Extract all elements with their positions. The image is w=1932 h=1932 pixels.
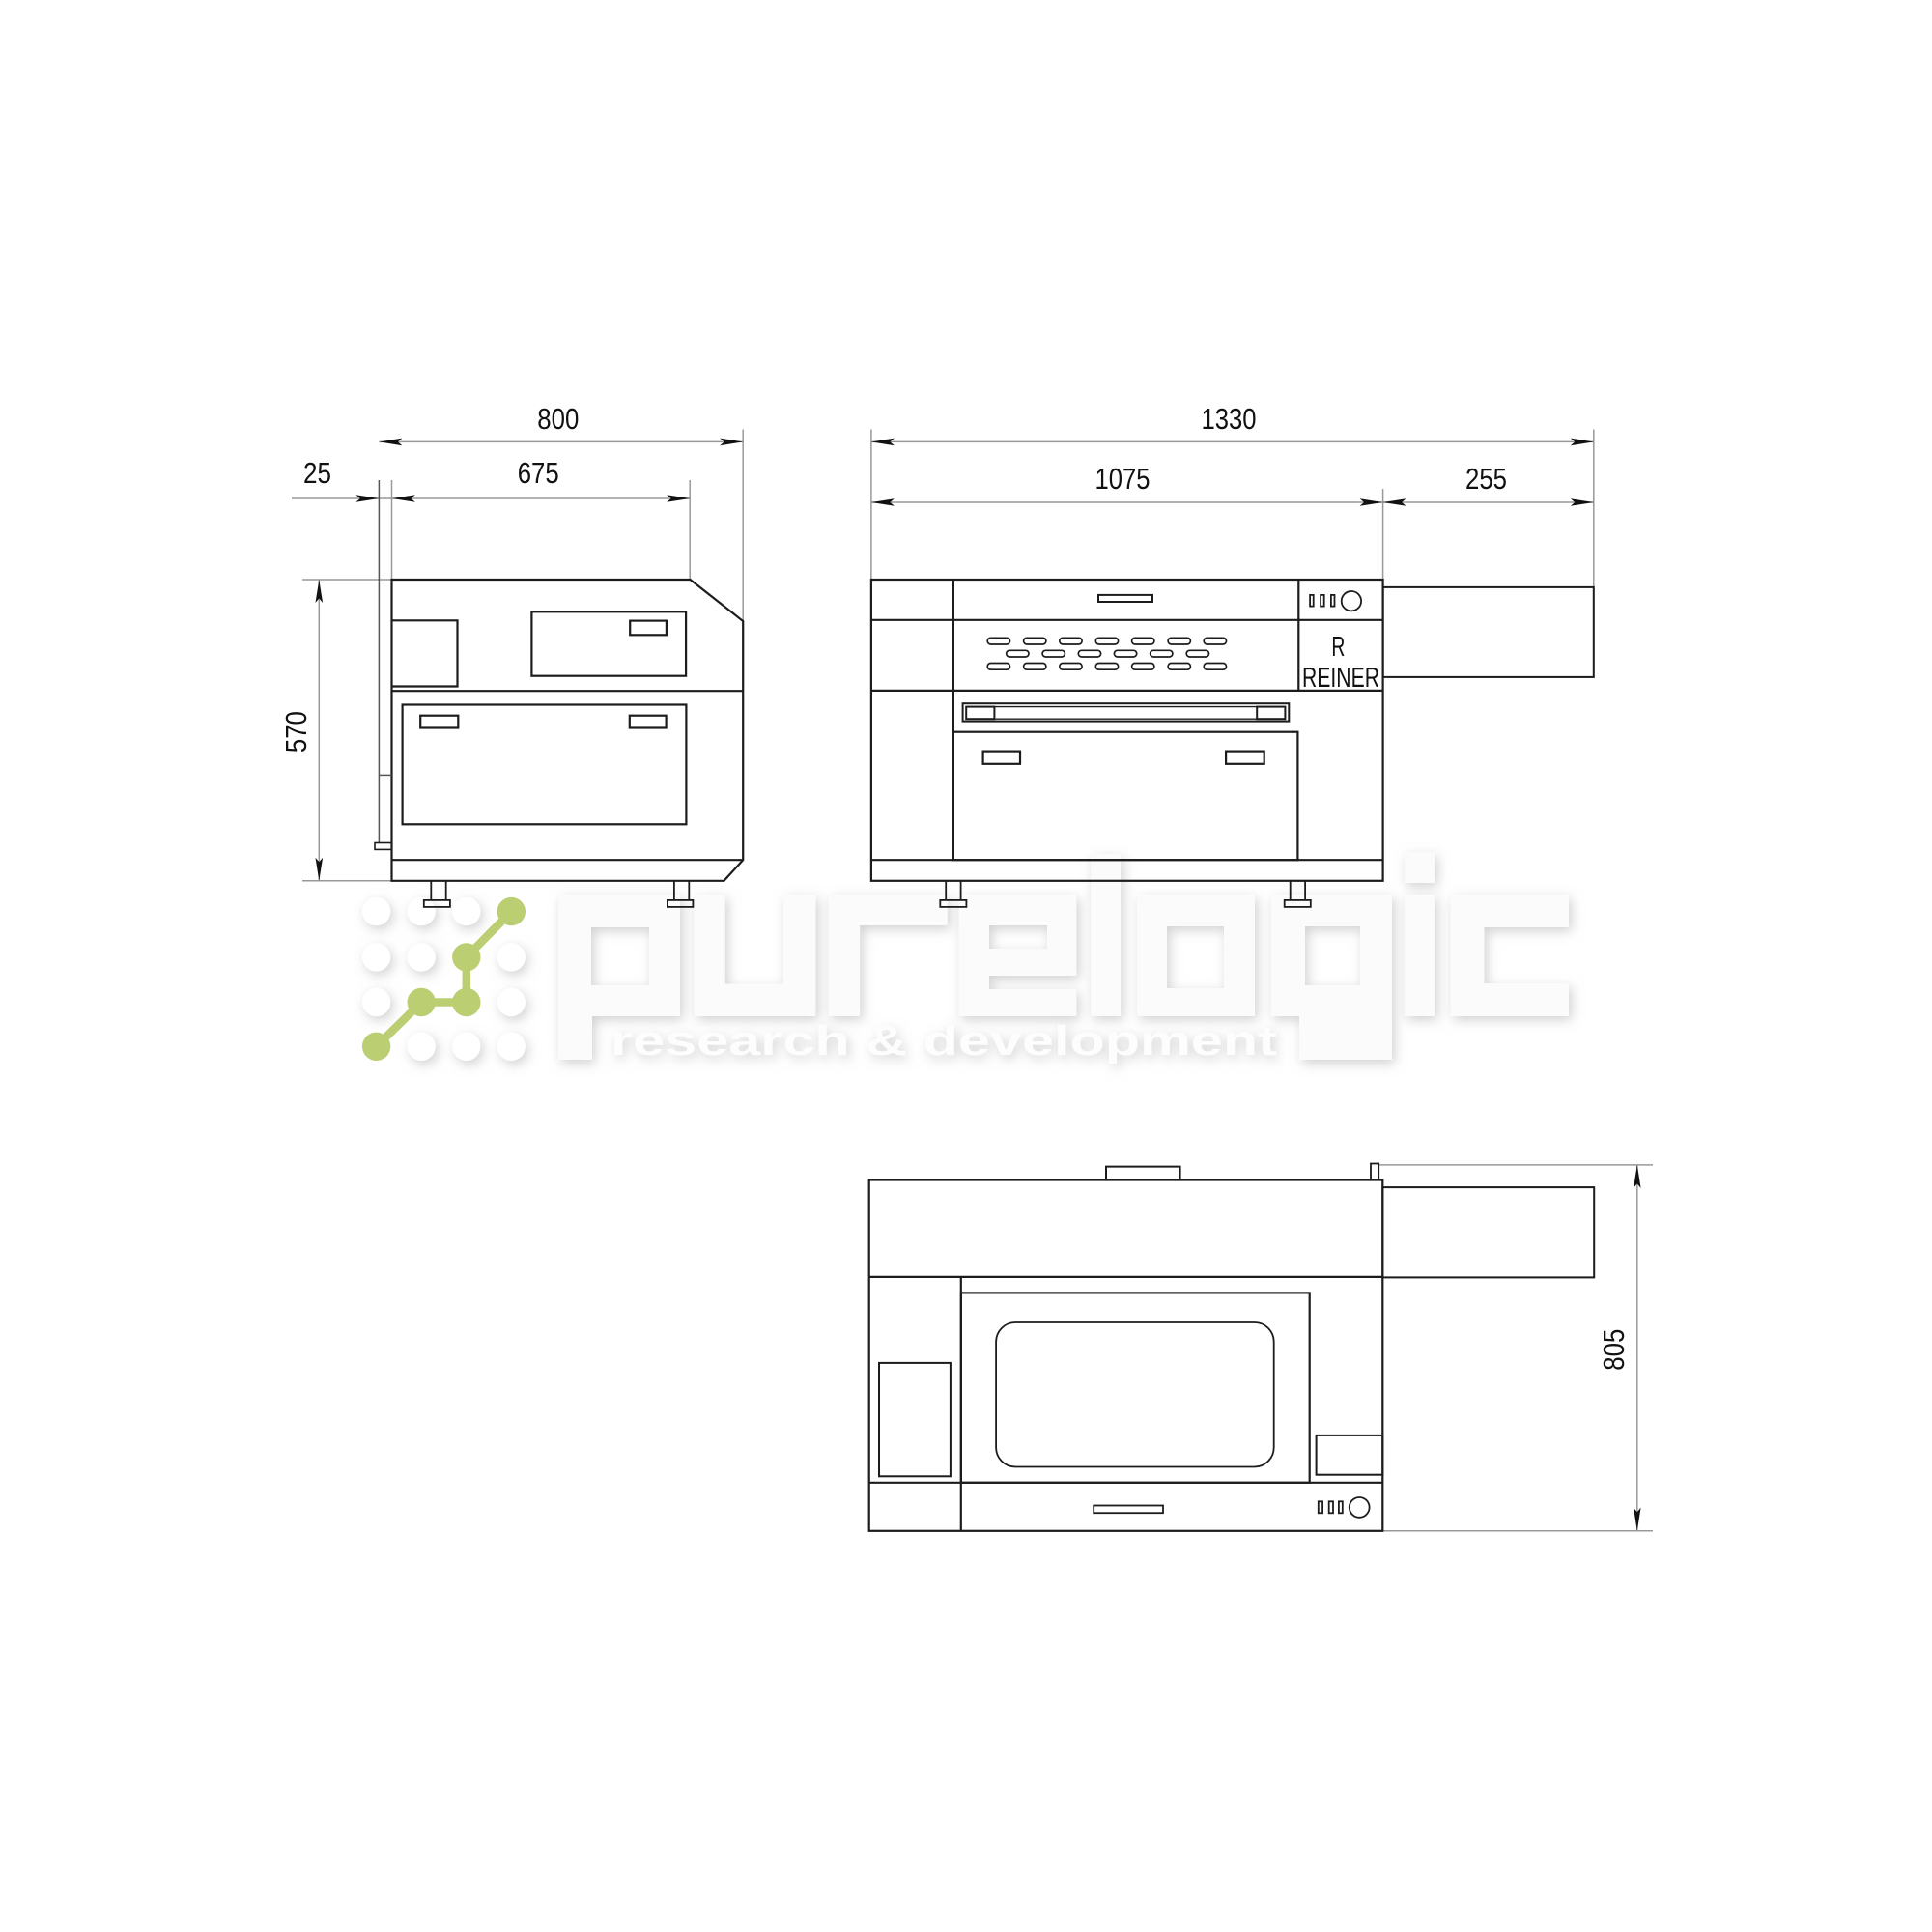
svg-text:1075: 1075: [1095, 462, 1151, 496]
svg-text:805: 805: [1597, 1329, 1631, 1371]
svg-text:570: 570: [279, 711, 313, 753]
svg-text:research & development: research & development: [611, 1017, 1277, 1065]
svg-text:800: 800: [537, 402, 579, 436]
svg-text:REINER: REINER: [1302, 663, 1379, 694]
svg-text:1330: 1330: [1202, 402, 1257, 436]
svg-text:255: 255: [1465, 462, 1507, 496]
svg-text:25: 25: [303, 456, 331, 490]
svg-text:675: 675: [518, 456, 559, 490]
svg-text:R: R: [1331, 632, 1345, 663]
